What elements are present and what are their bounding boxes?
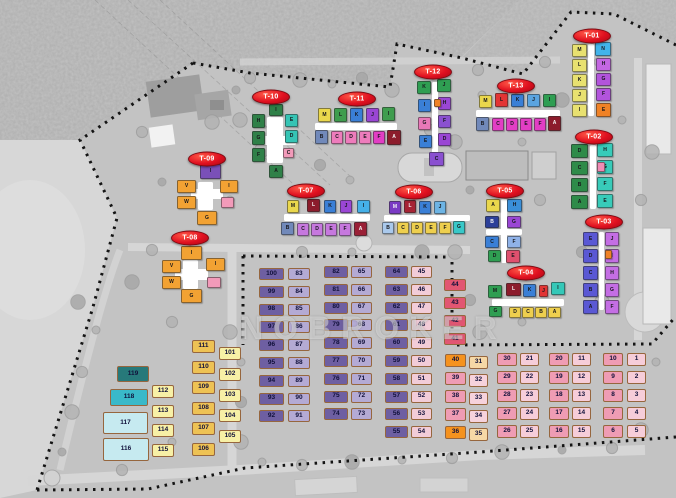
- tower-courtyard: [599, 232, 604, 310]
- tower-label-T-02: T-02: [575, 130, 613, 145]
- tower-block-T-04: B: [535, 307, 547, 318]
- tower-label-T-13: T-13: [497, 79, 535, 94]
- tower-block-T-03: J: [605, 232, 619, 246]
- tower-block-T-13: J: [527, 94, 540, 107]
- tower-block-T-06: E: [425, 222, 437, 234]
- tower-block-T-05: E: [506, 250, 520, 263]
- tower-block-T-07: L: [307, 199, 320, 212]
- tower-block-T-13: I: [543, 94, 556, 107]
- tower-block-T-12: F: [438, 115, 451, 128]
- tower-block-T-11: B: [315, 130, 328, 144]
- tower-block-T-10: I: [269, 104, 283, 116]
- tower-block-T-08: [207, 277, 221, 288]
- tower-block-T-08: I: [181, 246, 202, 260]
- tower-block-T-12: K: [417, 81, 431, 94]
- tower-label-T-11: T-11: [338, 92, 376, 107]
- tower-block-T-04: G: [489, 306, 502, 317]
- tower-label-T-05: T-05: [486, 184, 524, 199]
- tower-block-T-13: C: [492, 118, 504, 131]
- tower-block-T-05: D: [488, 250, 501, 262]
- tower-block-T-04: D: [509, 307, 521, 318]
- tower-block-T-02: D: [571, 144, 588, 158]
- tower-block-T-06: F: [439, 222, 451, 234]
- tower-block-T-12: I: [418, 99, 431, 112]
- tower-block-T-03: C: [583, 266, 598, 280]
- tower-block-T-13: F: [534, 118, 546, 131]
- tower-label-T-08: T-08: [171, 231, 209, 246]
- tower-block-T-08: I: [206, 258, 225, 271]
- tower-block-T-07: I: [357, 200, 370, 213]
- tower-block-T-01: I: [572, 104, 587, 117]
- tower-block-T-05: F: [507, 236, 521, 248]
- tower-block-T-06: D: [411, 222, 423, 234]
- tower-block-T-03: G: [605, 283, 619, 297]
- tower-block-T-10: C: [283, 148, 294, 158]
- tower-block-T-02: C: [571, 161, 588, 175]
- tower-layer: MLKJINHGFET-01DCBAHGFET-02EDCBAJIHGFT-03…: [0, 0, 676, 498]
- tower-courtyard: [315, 123, 397, 130]
- tower-block-T-13: M: [479, 95, 492, 108]
- tower-block-T-04: I: [551, 282, 565, 295]
- tower-block-T-09: [221, 197, 234, 208]
- tower-block-T-03: [605, 250, 612, 259]
- tower-block-T-08: V: [162, 260, 181, 273]
- tower-block-T-12: G: [418, 117, 431, 130]
- tower-block-T-07: C: [297, 223, 309, 236]
- tower-block-T-12: C: [429, 152, 444, 166]
- tower-block-T-09: V: [177, 180, 196, 193]
- tower-block-T-08: W: [162, 276, 181, 289]
- tower-courtyard: [588, 44, 594, 116]
- tower-block-T-13: D: [506, 118, 518, 131]
- tower-label-T-12: T-12: [414, 65, 452, 80]
- tower-block-T-04: L: [506, 283, 521, 296]
- tower-label-T-10: T-10: [252, 90, 290, 105]
- tower-block-T-11: E: [359, 131, 371, 144]
- tower-block-T-07: D: [311, 223, 323, 236]
- tower-courtyard: [590, 145, 596, 209]
- tower-block-T-10: F: [252, 148, 265, 162]
- tower-block-T-09: G: [197, 211, 217, 225]
- tower-block-T-01: J: [572, 89, 587, 102]
- tower-block-T-13: E: [520, 118, 532, 131]
- tower-block-T-07: A: [354, 222, 367, 236]
- tower-block-T-13: A: [548, 116, 561, 131]
- tower-block-T-11: F: [373, 131, 385, 144]
- tower-block-T-01: L: [572, 59, 587, 72]
- tower-block-T-07: F: [339, 223, 351, 236]
- tower-block-T-06: L: [404, 200, 416, 213]
- tower-block-T-11: J: [366, 108, 379, 122]
- site-plan: 1009998979695949392838485868788899091828…: [0, 0, 676, 498]
- tower-block-T-06: G: [453, 221, 465, 234]
- tower-block-T-13: K: [511, 94, 524, 107]
- tower-block-T-06: B: [382, 222, 394, 234]
- tower-block-T-10: A: [269, 165, 283, 178]
- tower-block-T-07: B: [281, 222, 294, 235]
- tower-block-T-01: G: [596, 73, 611, 86]
- tower-courtyard: [486, 229, 522, 235]
- tower-block-T-07: E: [325, 223, 337, 236]
- tower-block-T-03: E: [583, 232, 598, 246]
- tower-block-T-04: M: [488, 285, 502, 298]
- tower-block-T-11: D: [345, 131, 357, 144]
- tower-block-T-11: K: [350, 108, 363, 122]
- tower-block-T-11: C: [331, 131, 343, 144]
- tower-block-T-11: L: [334, 108, 347, 122]
- tower-block-T-05: H: [507, 199, 522, 212]
- tower-label-T-03: T-03: [585, 215, 623, 230]
- tower-block-T-04: C: [522, 307, 534, 318]
- tower-block-T-06: J: [434, 201, 446, 214]
- tower-block-T-10: E: [285, 114, 298, 127]
- tower-block-T-03: F: [605, 300, 619, 314]
- tower-block-T-13: B: [476, 117, 489, 131]
- tower-block-T-08: G: [181, 289, 202, 303]
- tower-label-T-01: T-01: [573, 29, 611, 44]
- tower-block-T-03: D: [583, 249, 598, 263]
- tower-block-T-03: H: [605, 266, 619, 280]
- tower-block-T-01: E: [596, 103, 611, 117]
- tower-block-T-11: A: [387, 130, 401, 145]
- tower-block-T-12: J: [437, 79, 451, 92]
- tower-block-T-10: G: [252, 131, 265, 145]
- tower-block-T-11: I: [382, 107, 395, 121]
- tower-block-T-05: C: [485, 236, 499, 248]
- tower-block-T-06: C: [397, 222, 409, 234]
- tower-block-T-02: F: [597, 177, 613, 191]
- tower-block-T-03: A: [583, 300, 598, 314]
- tower-block-T-01: H: [596, 58, 611, 71]
- tower-block-T-04: K: [523, 284, 536, 297]
- tower-block-T-12: D: [438, 133, 451, 146]
- tower-block-T-10: D: [285, 130, 298, 143]
- tower-block-T-07: J: [340, 200, 352, 213]
- tower-block-T-05: G: [507, 216, 521, 228]
- tower-block-T-01: N: [595, 42, 611, 56]
- tower-label-T-04: T-04: [507, 266, 545, 281]
- tower-block-T-01: K: [572, 74, 587, 87]
- tower-block-T-02: [597, 162, 605, 172]
- tower-block-T-06: M: [389, 201, 401, 214]
- tower-block-T-01: F: [596, 88, 611, 101]
- tower-label-T-06: T-06: [395, 185, 433, 200]
- tower-block-T-07: M: [287, 200, 299, 213]
- tower-block-T-09: W: [177, 196, 196, 209]
- tower-block-T-02: E: [597, 194, 613, 208]
- tower-block-T-01: M: [572, 44, 587, 57]
- tower-block-T-06: K: [419, 201, 431, 214]
- tower-block-T-04: A: [548, 307, 561, 318]
- tower-block-T-05: A: [486, 199, 500, 212]
- tower-block-T-11: M: [318, 108, 331, 122]
- tower-block-T-12: [434, 99, 441, 107]
- tower-label-T-07: T-07: [287, 184, 325, 199]
- tower-block-T-03: B: [583, 283, 598, 297]
- tower-block-T-04: J: [539, 285, 548, 297]
- tower-block-T-02: B: [571, 178, 588, 192]
- tower-block-T-10: H: [252, 114, 265, 128]
- tower-block-T-07: K: [324, 200, 336, 213]
- tower-courtyard: [284, 214, 370, 221]
- tower-block-T-05: B: [485, 216, 499, 228]
- tower-label-T-09: T-09: [188, 152, 226, 167]
- tower-block-T-13: L: [495, 93, 508, 107]
- tower-block-T-02: A: [571, 195, 588, 209]
- tower-courtyard: [492, 299, 564, 306]
- tower-block-T-02: H: [597, 143, 613, 157]
- tower-block-T-09: I: [220, 180, 238, 193]
- tower-block-T-12: E: [419, 135, 432, 148]
